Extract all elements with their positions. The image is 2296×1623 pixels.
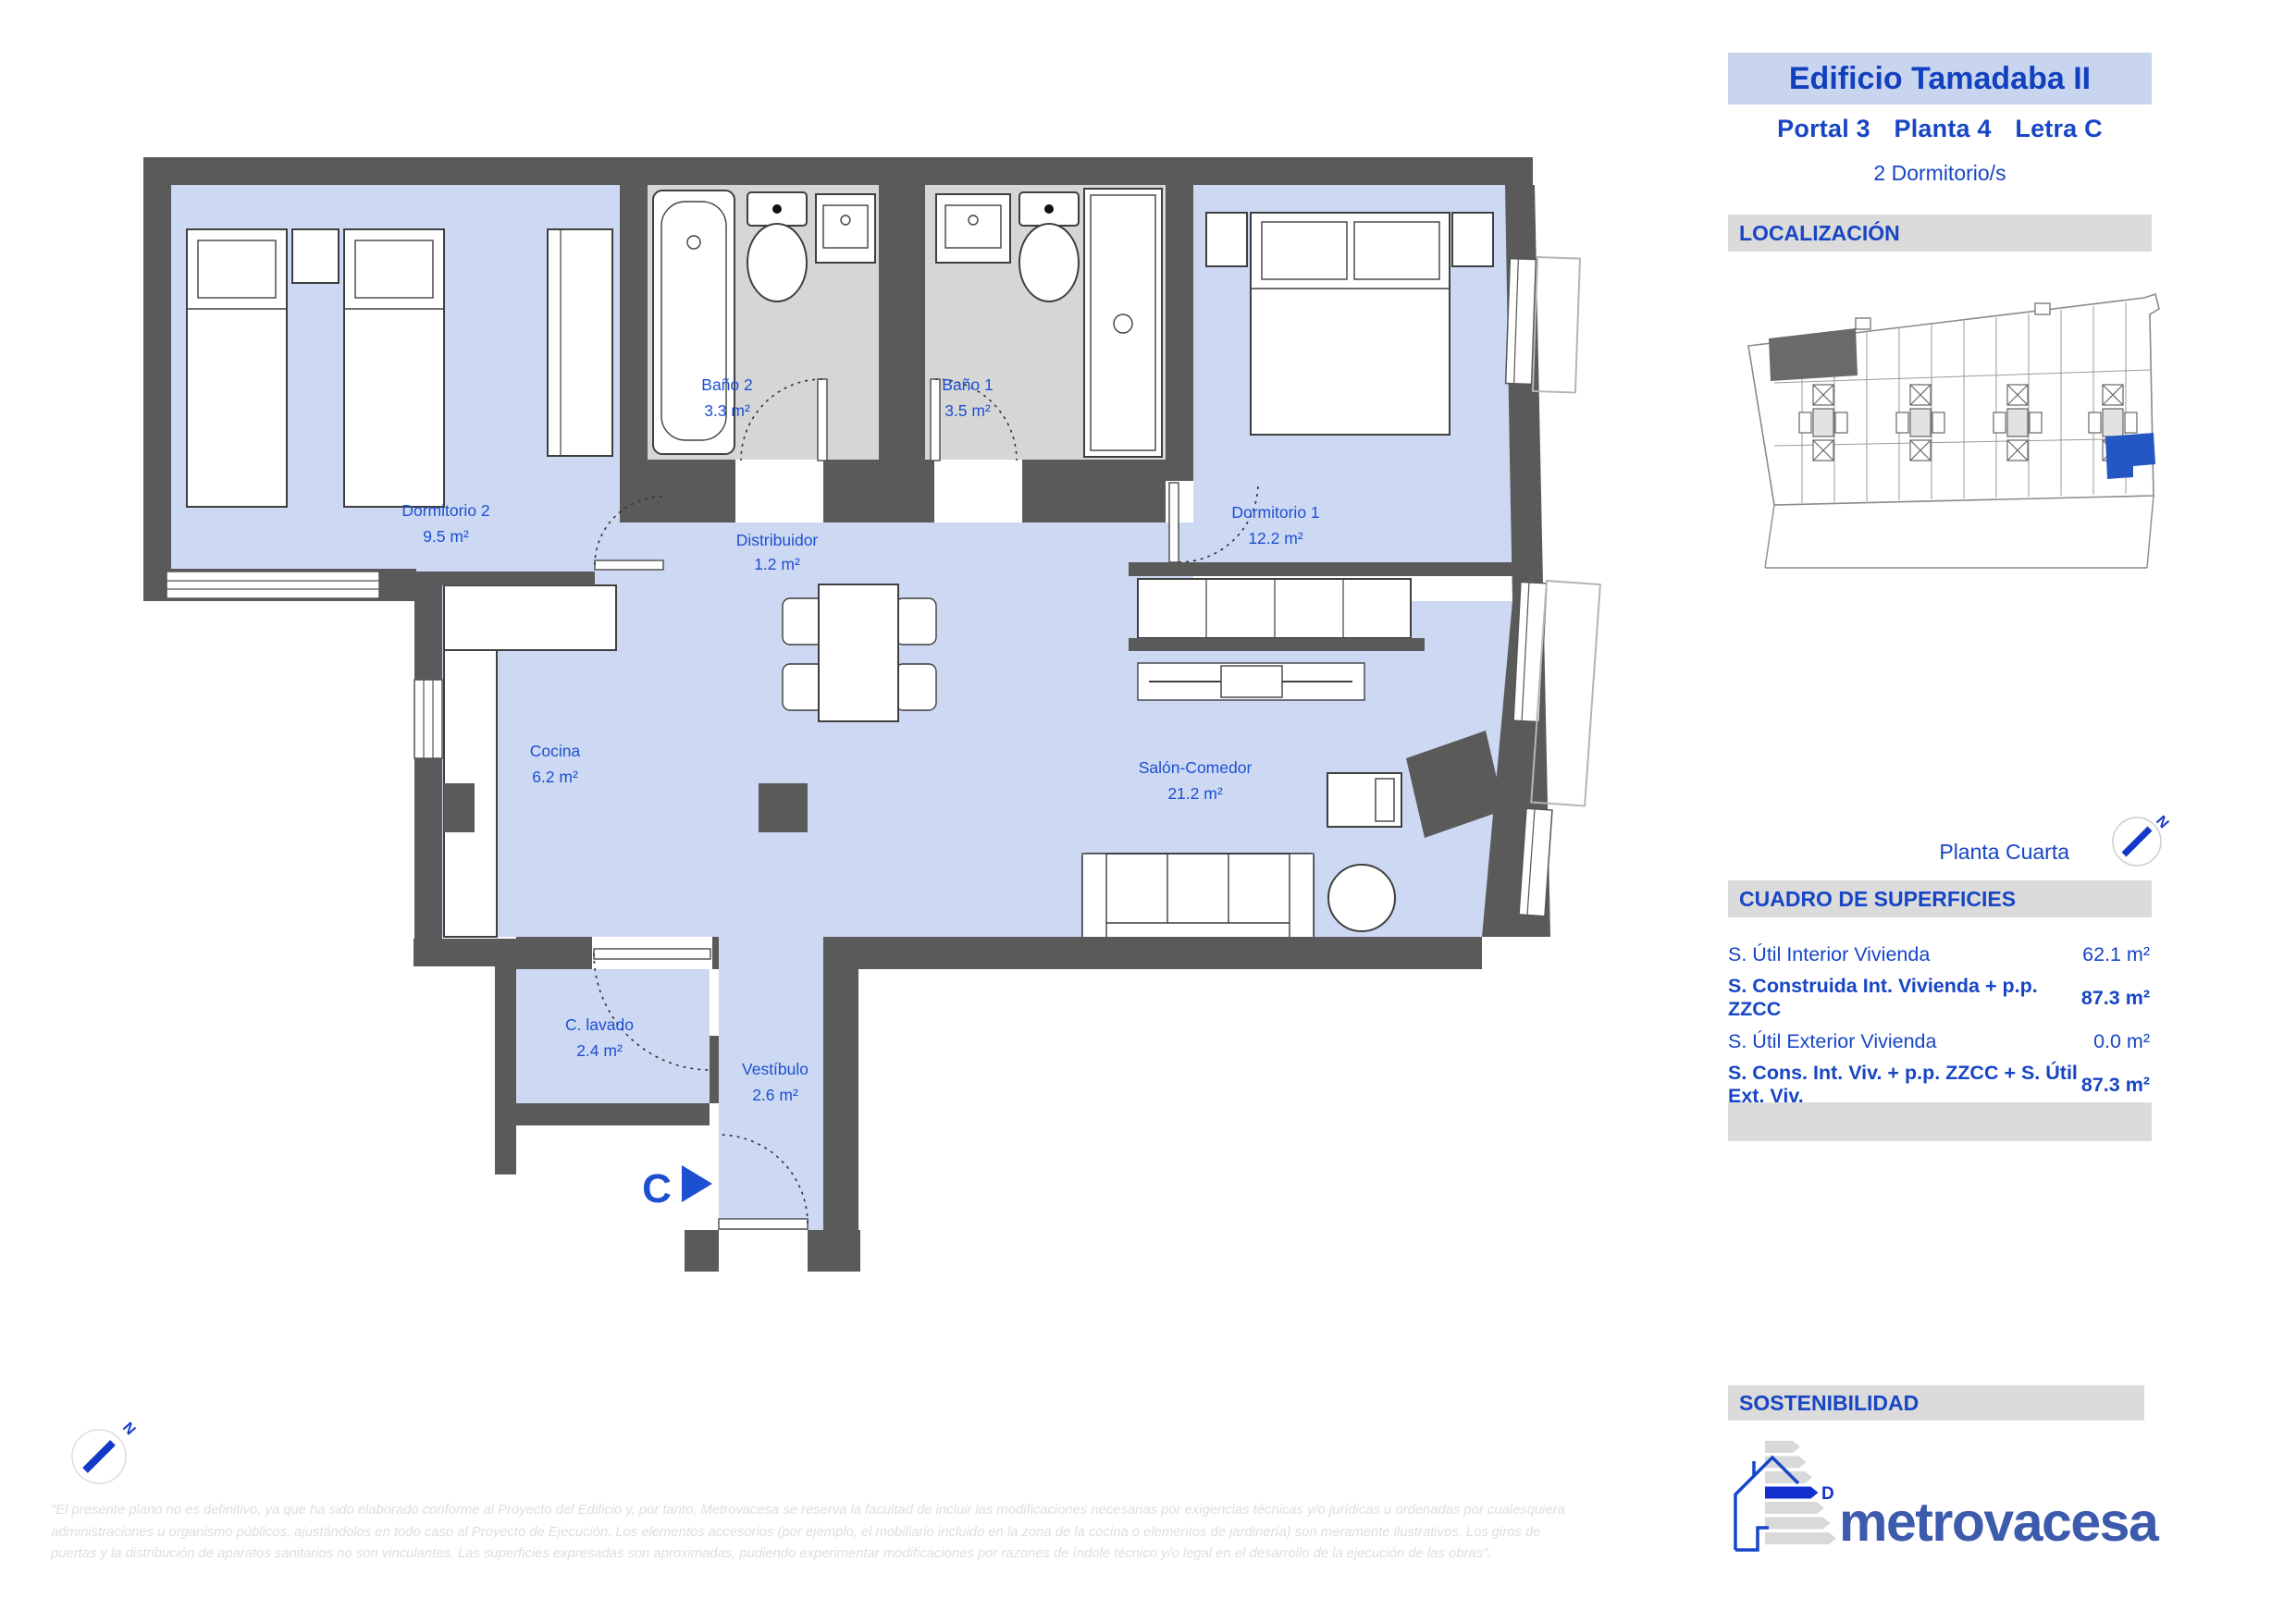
energy-rating-letter: D (1821, 1484, 1834, 1504)
room-label: Dormitorio 1 (1231, 503, 1319, 522)
section-localizacion: LOCALIZACIÓN (1728, 215, 2152, 252)
energy-arrow-d (1765, 1487, 1819, 1499)
vestibulo-floor (719, 937, 823, 1230)
sink-bano2 (816, 194, 875, 263)
surface-value: 87.3 m² (2081, 987, 2152, 1010)
dorm1-nightstand-left (1206, 213, 1247, 266)
balcony-outline-top (1533, 257, 1580, 393)
pillar-kitchen (444, 783, 475, 832)
surface-label: S. Cons. Int. Viv. + p.p. ZZCC + S. Útil… (1728, 1062, 2081, 1108)
window-kitchen (414, 680, 442, 758)
sofa (1082, 854, 1314, 939)
wall-top (143, 157, 1533, 185)
wall-stub-left (414, 939, 495, 966)
sink-bano1 (936, 194, 1010, 263)
portal-label: Portal 3 (1777, 115, 1870, 142)
room-area: 2.6 m² (752, 1086, 798, 1104)
room-area: 21.2 m² (1167, 784, 1222, 803)
surface-label: S. Útil Exterior Vivienda (1728, 1030, 2093, 1053)
site-boundary (1765, 496, 2154, 568)
wall-bath-bottom-d (1022, 460, 1166, 523)
wall-entrance-left (685, 1230, 719, 1272)
surface-row: S. Construida Int. Vivienda + p.p. ZZCC … (1728, 979, 2152, 1016)
location-map (1737, 274, 2260, 579)
room-area: 9.5 m² (423, 527, 469, 546)
legal-disclaimer: "El presente plano no es definitivo, ya … (51, 1500, 1730, 1566)
entrance-arrow-icon (682, 1165, 712, 1202)
room-area: 12.2 m² (1248, 529, 1302, 547)
room-area: 3.3 m² (704, 401, 750, 420)
wall-dorm1-bottom (1129, 562, 1521, 576)
surface-label: S. Construida Int. Vivienda + p.p. ZZCC (1728, 975, 2081, 1021)
building-outline (1748, 294, 2159, 505)
disclaimer-line: "El presente plano no es definitivo, ya … (51, 1500, 1730, 1522)
wall-clavado-west (495, 939, 516, 1174)
room-label: Baño 2 (701, 375, 752, 394)
wall-clavado-bottom (495, 1103, 710, 1125)
surface-value: 87.3 m² (2081, 1074, 2152, 1097)
sideboard (1138, 663, 1364, 700)
surface-row: S. Útil Interior Vivienda 62.1 m² (1728, 936, 2152, 973)
wall-baths-divider (879, 185, 925, 523)
room-area: 3.5 m² (944, 401, 991, 420)
tv-cabinet (1327, 773, 1401, 827)
wall-kitchen-west (414, 585, 442, 939)
section-superficies: CUADRO DE SUPERFICIES (1728, 880, 2152, 917)
wall-left (143, 157, 171, 601)
entrance-letter: C (642, 1166, 672, 1211)
brand-logo: metrovacesa (1839, 1491, 2157, 1554)
room-label: Cocina (530, 742, 581, 760)
wall-clavado-vest-divider (710, 1036, 719, 1103)
wall-bath1-dorm1 (1166, 185, 1193, 481)
wall-bath-bottom-a (648, 460, 735, 523)
surface-label: S. Útil Interior Vivienda (1728, 943, 2082, 966)
room-area: 6.2 m² (532, 768, 578, 786)
wardrobe-dorm1 (1138, 579, 1411, 638)
page-title: Edificio Tamadaba II (1728, 53, 2152, 105)
unit-identifier: Portal 3 Planta 4 Letra C (1728, 115, 2152, 143)
toilet-bano2 (747, 192, 807, 301)
window-dorm2 (167, 572, 379, 598)
letra-label: Letra C (2015, 115, 2102, 142)
wall-wardrobe-bottom (1129, 638, 1425, 651)
room-label: Vestíbulo (742, 1060, 809, 1078)
wall-thin-distrib (416, 572, 595, 585)
room-label: Dormitorio 2 (401, 501, 489, 520)
wall-hall-bottom-b (712, 937, 719, 969)
map-notch-2 (2035, 303, 2050, 314)
floor-name-label: Planta Cuarta (1884, 840, 2069, 865)
bedrooms-label: 2 Dormitorio/s (1728, 161, 2152, 186)
wall-entrance-right (808, 1230, 860, 1272)
map-dark-unit (1769, 328, 1858, 381)
wall-hall-bottom-a (516, 937, 592, 969)
wall-bath-bottom-c (925, 460, 934, 523)
floorplan-drawing: Dormitorio 2 9.5 m² Baño 2 3.3 m² Baño 1… (130, 148, 1610, 1313)
dorm2-nightstand (292, 229, 339, 283)
wall-dorm2-bath2 (620, 185, 648, 523)
shower-tray (1084, 189, 1162, 457)
compass-plan: N (57, 1406, 150, 1498)
floorplan-sheet: { "header": { "title": "Edificio Tamadab… (0, 0, 2296, 1623)
surface-value: 62.1 m² (2082, 943, 2152, 966)
dorm1-double-bed (1251, 213, 1450, 435)
pillar-hall (759, 783, 808, 832)
compass-north-label: N (119, 1420, 138, 1438)
empty-gray-bar (1728, 1102, 2152, 1141)
toilet-bano1 (1019, 192, 1079, 301)
wall-bath-bottom-b (823, 460, 879, 523)
room-label: Distribuidor (736, 531, 819, 549)
clavado-floor (516, 969, 710, 1103)
wall-salon-bottom (858, 937, 1482, 969)
disclaimer-line: puertas y la distribución de aparatos sa… (51, 1543, 1730, 1566)
planta-label: Planta 4 (1895, 115, 1992, 142)
round-side-table (1328, 865, 1395, 931)
compass-panel: N (2109, 806, 2174, 871)
wall-vestibulo-east (823, 937, 858, 1272)
section-sostenibilidad: SOSTENIBILIDAD (1728, 1385, 2144, 1420)
dorm2-wardrobe (548, 229, 612, 456)
room-label: C. lavado (565, 1015, 634, 1034)
room-area: 2.4 m² (576, 1041, 623, 1060)
dorm1-nightstand-right (1452, 213, 1493, 266)
room-area: 1.2 m² (754, 555, 800, 573)
surface-value: 0.0 m² (2093, 1030, 2152, 1053)
surface-row: S. Útil Exterior Vivienda 0.0 m² (1728, 1023, 2152, 1060)
room-label: Baño 1 (942, 375, 993, 394)
window-dorm1 (1506, 259, 1537, 385)
dorm2-bed-2 (344, 229, 444, 507)
room-label: Salón-Comedor (1139, 758, 1253, 777)
map-notch-1 (1856, 318, 1870, 329)
surface-row: S. Cons. Int. Viv. + p.p. ZZCC + S. Útil… (1728, 1066, 2152, 1103)
disclaimer-line: administraciones u organismo públicos, a… (51, 1522, 1730, 1544)
dorm2-bed-1 (187, 229, 287, 507)
